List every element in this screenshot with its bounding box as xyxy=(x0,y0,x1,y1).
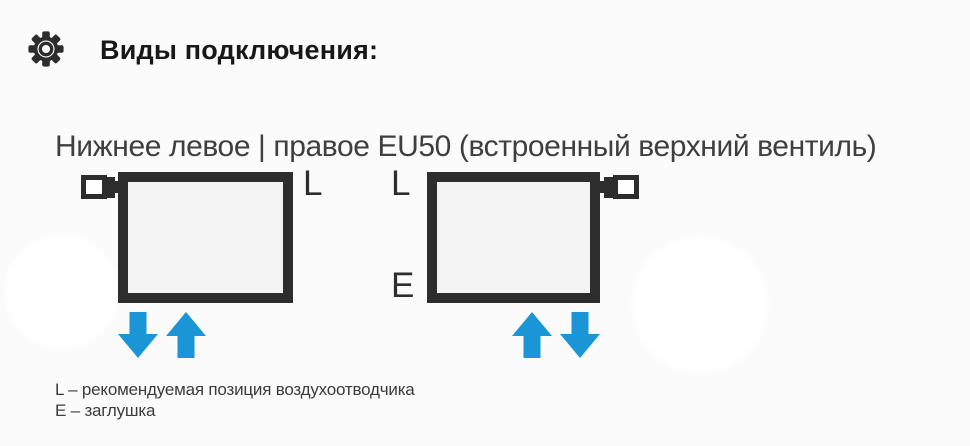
plug-label-right-radiator: E xyxy=(391,268,414,303)
connection-subtitle: Нижнее левое | правое EU50 (встроенный в… xyxy=(55,130,876,163)
legend-air-vent: L – рекомендуемая позиция воздухоотводчи… xyxy=(55,379,415,400)
arrow-up-icon xyxy=(512,312,552,358)
legend: L – рекомендуемая позиция воздухоотводчи… xyxy=(55,379,415,421)
page-title: Виды подключения: xyxy=(100,36,378,66)
air-vent-label-right-radiator: L xyxy=(391,166,410,201)
arrow-down-icon xyxy=(118,312,158,358)
valve-body-right xyxy=(613,175,639,199)
valve-stem-right xyxy=(599,181,605,193)
connection-types-diagram: Виды подключения: Нижнее левое | правое … xyxy=(0,0,970,446)
radiator-right xyxy=(427,172,600,303)
gear-icon xyxy=(27,30,65,68)
arrow-down-icon xyxy=(560,312,600,358)
radiator-left xyxy=(118,172,293,303)
legend-plug: E – заглушка xyxy=(55,400,415,421)
valve-connector-right xyxy=(604,177,613,198)
air-vent-label-left-radiator: L xyxy=(303,166,322,201)
valve-body-left xyxy=(81,175,107,199)
arrow-up-icon xyxy=(166,312,206,358)
valve-stem-left xyxy=(114,181,120,193)
